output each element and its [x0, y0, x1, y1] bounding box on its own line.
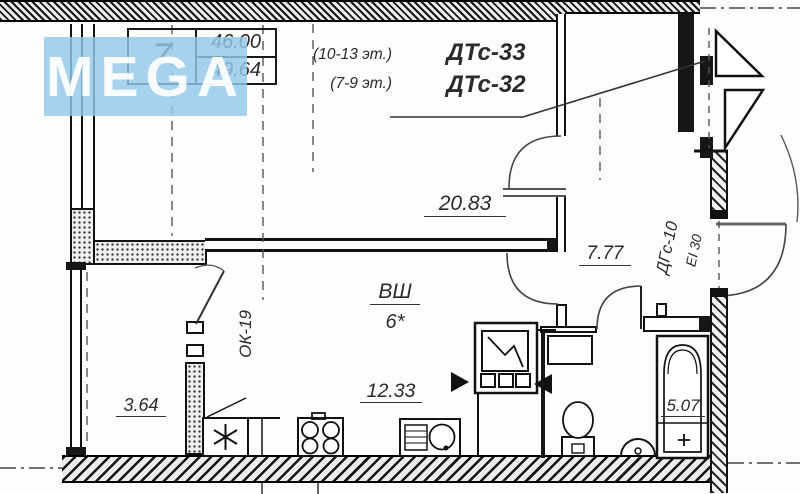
- bathroom-area: 5.07: [661, 397, 705, 417]
- toilet-symbol: [562, 402, 594, 456]
- vent-shaft-label: ВШ: [370, 281, 420, 305]
- floor-plan: 7 46.00 49.64 (10-13 эт.) ДТс-33 (7-9 эт…: [0, 0, 800, 494]
- loggia-area: 3.64: [116, 396, 166, 417]
- door-loggia-swing: [195, 265, 224, 324]
- hall-area: 7.77: [579, 244, 631, 266]
- fire-door-cap-top: [710, 210, 728, 219]
- kitchen-sink-symbol: [400, 419, 460, 456]
- door-fire-swing: [716, 224, 786, 296]
- fire-door-cap-bottom: [710, 288, 728, 297]
- washbasin-symbol: [621, 439, 655, 456]
- door-entrance-leaves: [716, 31, 763, 148]
- door-bathroom-swing: [597, 286, 641, 329]
- sink-unit-symbol: [203, 418, 248, 456]
- washing-machine: [548, 336, 592, 364]
- layout-type-a: ДТс-33: [425, 40, 547, 65]
- vent-shaft-symbol: [451, 323, 556, 456]
- door-neighbor-arc: [781, 135, 798, 222]
- floors-range-a: (10-13 эт.): [300, 47, 392, 63]
- door-kitchen-swing: [507, 253, 558, 304]
- rooms-note-label: 6*: [372, 312, 418, 333]
- door-living-swing: [509, 136, 561, 188]
- stove-symbol: [298, 413, 343, 456]
- kitchen-area: 12.33: [360, 381, 422, 403]
- floors-range-b: (7-9 эт.): [310, 76, 392, 92]
- window-block-mark: ОК-19: [237, 299, 255, 369]
- layout-type-b: ДТс-32: [425, 72, 547, 97]
- watermark-logo: MEGA: [44, 37, 247, 116]
- living-room-area: 20.83: [424, 193, 506, 217]
